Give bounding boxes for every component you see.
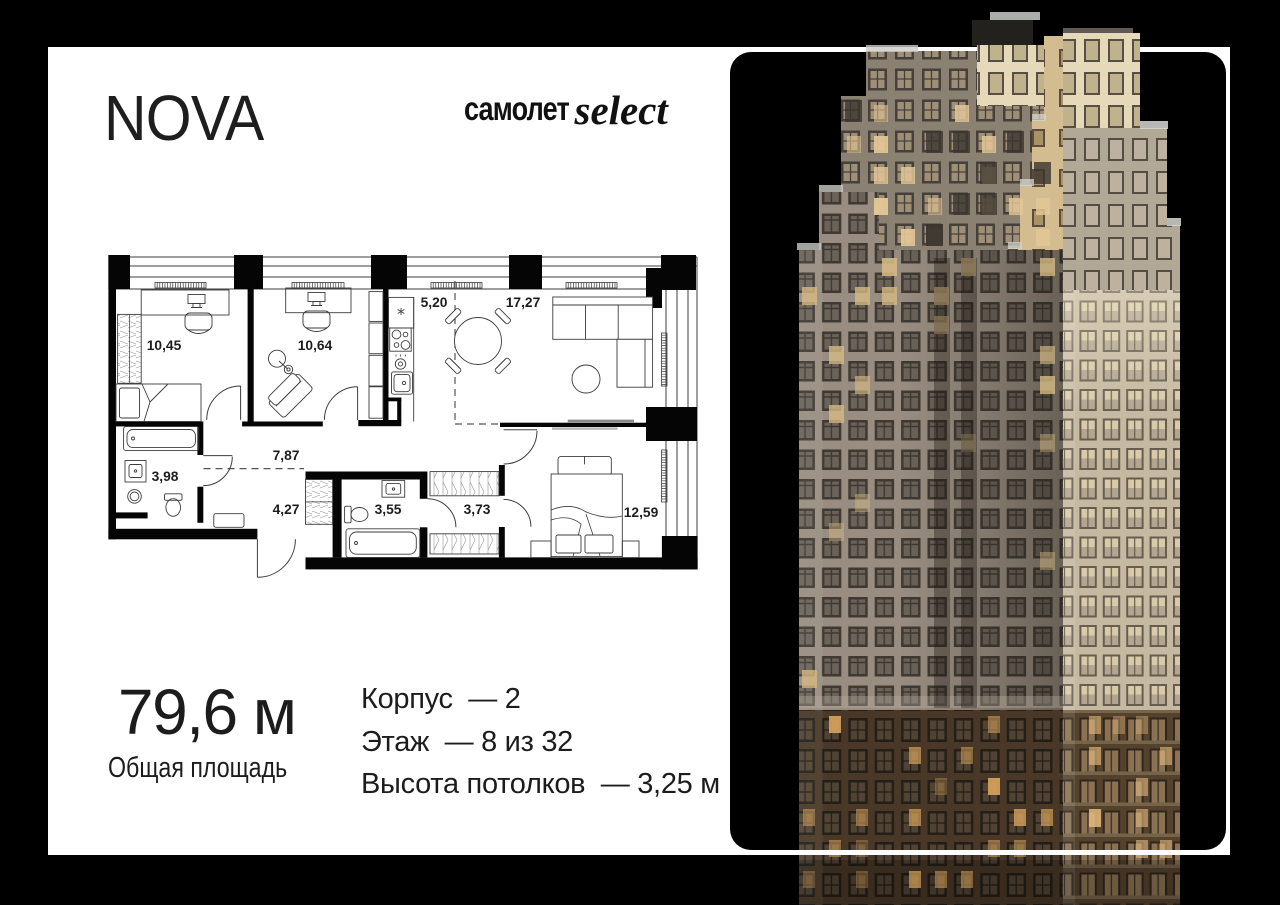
svg-text:4,27: 4,27 xyxy=(273,502,300,517)
svg-text:3,55: 3,55 xyxy=(375,502,402,517)
svg-text:10,64: 10,64 xyxy=(298,338,333,353)
svg-text:5,20: 5,20 xyxy=(421,295,448,310)
svg-text:3,98: 3,98 xyxy=(152,469,179,484)
svg-text:12,59: 12,59 xyxy=(624,505,659,520)
svg-text:17,27: 17,27 xyxy=(506,295,541,310)
svg-text:3,73: 3,73 xyxy=(464,502,491,517)
svg-text:10,45: 10,45 xyxy=(147,338,182,353)
svg-text:7,87: 7,87 xyxy=(273,448,300,463)
